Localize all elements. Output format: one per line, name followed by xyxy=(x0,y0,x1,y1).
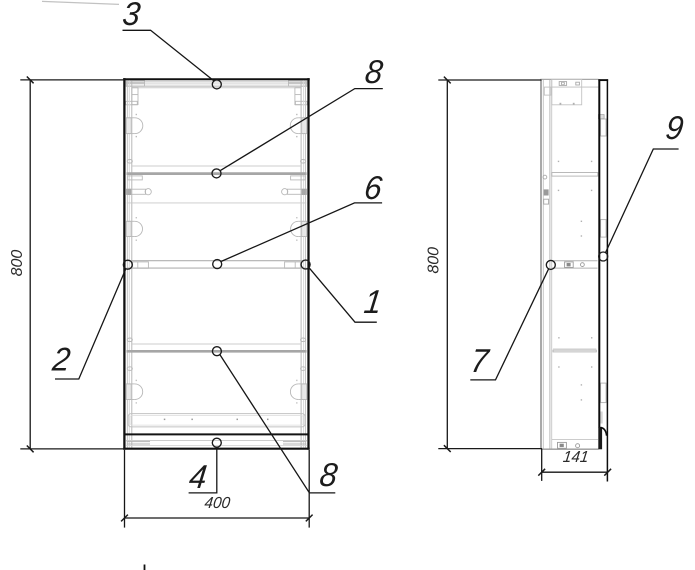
svg-text:141: 141 xyxy=(562,449,589,466)
svg-text:400: 400 xyxy=(204,495,232,512)
svg-text:800: 800 xyxy=(9,250,26,277)
svg-text:800: 800 xyxy=(426,247,443,274)
